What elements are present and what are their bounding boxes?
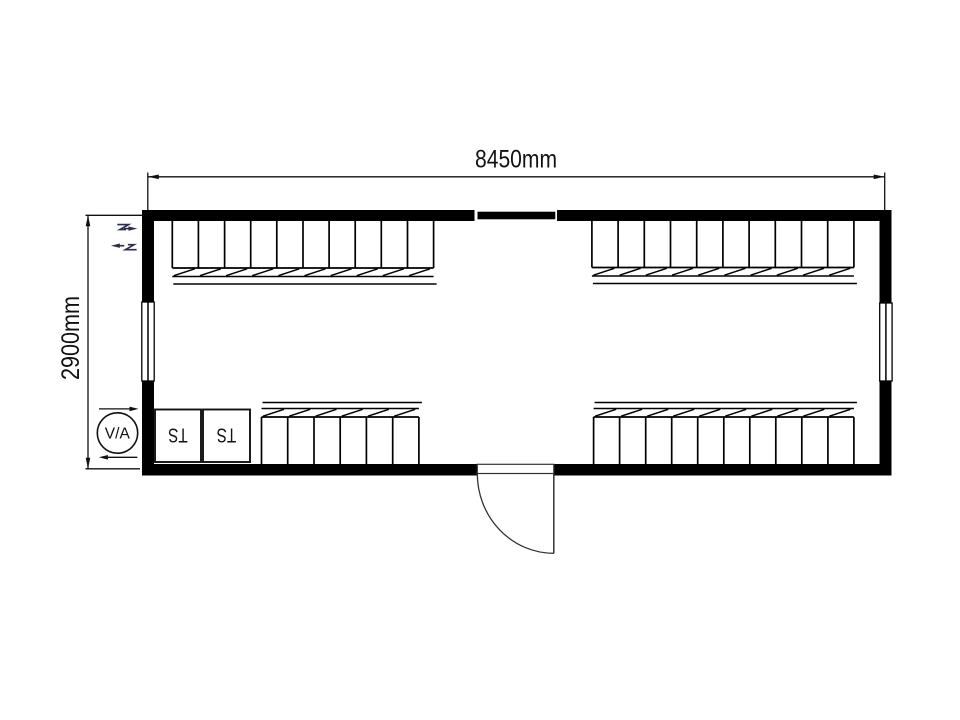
svg-text:8450mm: 8450mm	[475, 145, 557, 173]
svg-text:TS: TS	[217, 424, 237, 446]
svg-text:2900mm: 2900mm	[57, 296, 85, 380]
svg-text:V/A: V/A	[105, 426, 131, 443]
svg-text:TS: TS	[168, 424, 188, 446]
